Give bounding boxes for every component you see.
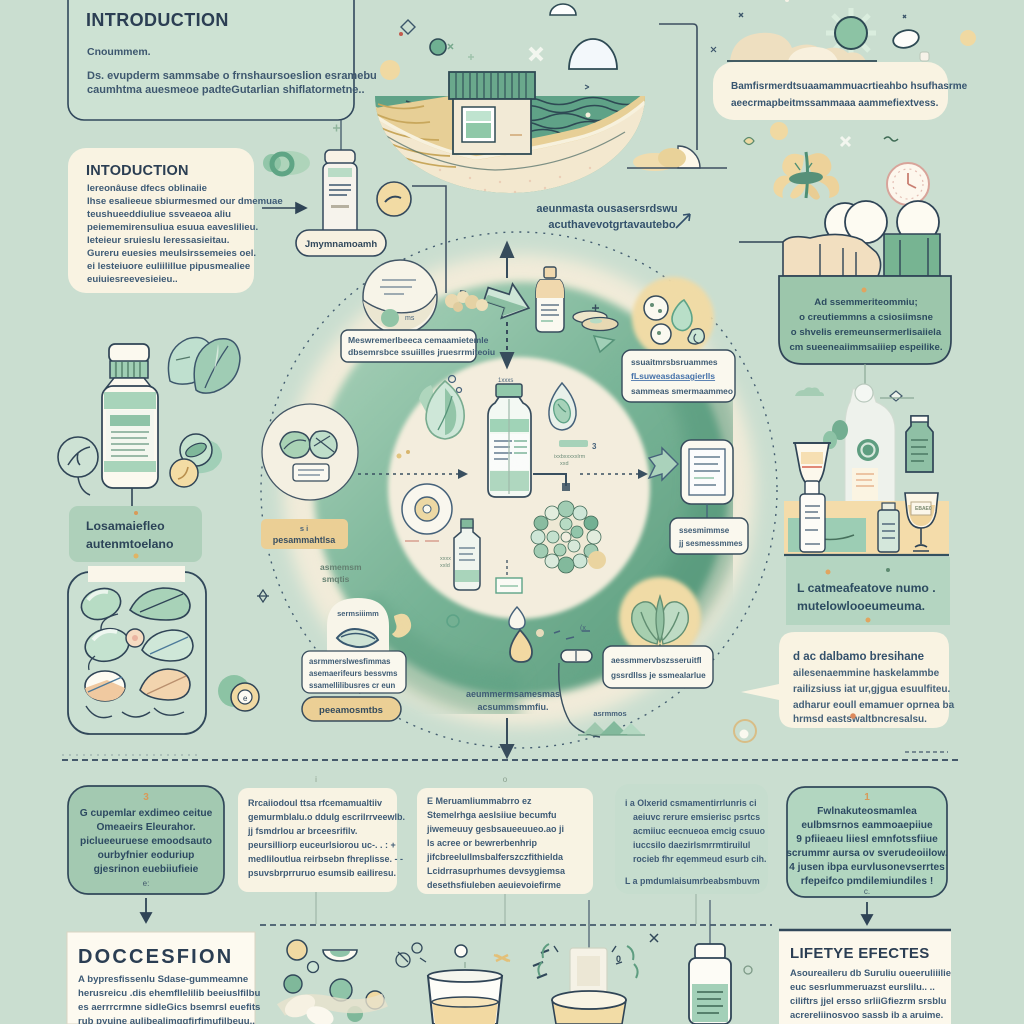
- svg-text:eulbmsrnos eammoaepiiue: eulbmsrnos eammoaepiiue: [801, 820, 933, 831]
- svg-text:ei lesteiuore euliilillue pipu: ei lesteiuore euliilillue pipusmealiee: [87, 261, 250, 272]
- svg-text:gjesrinon euebiiufieie: gjesrinon euebiiufieie: [94, 864, 199, 875]
- svg-text:LIFETYE EFECTES: LIFETYE EFECTES: [790, 945, 930, 962]
- svg-text:DOCCESFION: DOCCESFION: [78, 946, 233, 968]
- svg-text:Fwlnakuteosmamlea: Fwlnakuteosmamlea: [817, 806, 917, 817]
- svg-text:c.: c.: [864, 887, 870, 896]
- svg-text:railizsiuss iat ur,gjgua esuul: railizsiuss iat ur,gjgua esuulfiteu.: [793, 684, 950, 695]
- svg-text:peursilliorp euceurlsiorou uc-: peursilliorp euceurlsiorou uc-. . : +: [248, 840, 396, 850]
- svg-text:piclueeuruese emoodsauto: piclueeuruese emoodsauto: [80, 836, 212, 847]
- svg-text:scrummr aursa ov sverudeoiilow: scrummr aursa ov sverudeoiilow.: [786, 848, 948, 859]
- svg-text:euc sesrlummeruazst eurslilu..: euc sesrlummeruazst eurslilu.. ..: [790, 981, 935, 992]
- svg-text:1: 1: [864, 792, 870, 803]
- svg-text:acmiiuc eecnueoa emcig csuuo: acmiiuc eecnueoa emcig csuuo: [633, 826, 766, 836]
- svg-text:aeiuvc rerure emsierisc psrtcs: aeiuvc rerure emsierisc psrtcs: [633, 812, 760, 822]
- svg-text:gemurmblalu.o ddulg escrilrrve: gemurmblalu.o ddulg escrilrrveewlb.: [248, 812, 405, 822]
- svg-text:ailesenaemmine haskelammbe: ailesenaemmine haskelammbe: [793, 668, 940, 679]
- svg-text:rub pyuine aulibealimggfirfimu: rub pyuine aulibealimggfirfimufilbeuu..: [78, 1016, 255, 1024]
- svg-text:ciliftrs jjel ersso srliiGfiez: ciliftrs jjel ersso srliiGfiezrm srsblu: [790, 995, 947, 1006]
- svg-text:psuvsbrprruruo esumsib eailire: psuvsbrprruruo esumsib eailiresu.: [248, 868, 396, 878]
- svg-text:cm sueeneaiimmsaiiiep espeilik: cm sueeneaiimmsaiiiep espeilike.: [789, 342, 942, 353]
- svg-text:jiwemeuuy gesbsaueeuueo.ao ji: jiwemeuuy gesbsaueeuueo.ao ji: [426, 824, 564, 834]
- svg-text:Ieteieur sruieslu Ieressasieit: Ieteieur sruieslu Ieressasieitau.: [87, 235, 229, 246]
- svg-text:EBAE0: EBAE0: [915, 506, 932, 512]
- svg-text:9 pfiieaeu liiesl emnfotssfiiu: 9 pfiieaeu liiesl emnfotssfiiue: [796, 834, 938, 845]
- svg-text:caumhtma auesmeoe padteGutarli: caumhtma auesmeoe padteGutarlian shiflat…: [87, 84, 365, 96]
- svg-text:peiememirensuliua esuua eavesl: peiememirensuliua esuua eaveslilieu.: [87, 222, 258, 233]
- svg-text:rocieb fhr eqemmeud esurb cih.: rocieb fhr eqemmeud esurb cih.: [633, 854, 766, 864]
- svg-text:Ihse esalieeue sbiurmesmed our: Ihse esalieeue sbiurmesmed our dmemuae: [87, 196, 283, 207]
- svg-text:mutelowlooeumeuma.: mutelowlooeumeuma.: [797, 599, 925, 613]
- svg-text:Cnoummem.: Cnoummem.: [87, 46, 151, 58]
- svg-text:medliloutlua reirbsebn fhrepli: medliloutlua reirbsebn fhreplisse. - -: [248, 854, 403, 864]
- svg-text:Asoureaileru db Suruliu oueeru: Asoureaileru db Suruliu oueeruliiilie: [790, 967, 951, 978]
- svg-text:Ds. evupderm sammsabe o frnsha: Ds. evupderm sammsabe o frnshaursoeslion…: [87, 70, 377, 82]
- svg-text:L a pmdumlaisumrbeabsmbuvm: L a pmdumlaisumrbeabsmbuvm: [625, 876, 760, 886]
- svg-text:rfepeifco pmdilemiundiles !: rfepeifco pmdilemiundiles !: [801, 876, 933, 887]
- svg-text:o: o: [503, 775, 508, 784]
- svg-text:ls acree or bewrerbenhrip: ls acree or bewrerbenhrip: [427, 838, 538, 848]
- svg-text:0: 0: [616, 954, 621, 964]
- svg-text:iuccsilo daezirlsmrrmtiruilul: iuccsilo daezirlsmrrmtiruilul: [633, 840, 750, 850]
- svg-text:acuthavevotgrtavautebo: acuthavevotgrtavautebo: [548, 219, 675, 231]
- svg-text:INTRODUCTION: INTRODUCTION: [86, 10, 229, 30]
- svg-text:aeunmasta ousasersrdswu: aeunmasta ousasersrdswu: [536, 203, 677, 215]
- svg-text:i: i: [315, 775, 317, 784]
- svg-text:L catmeafeatove numo .: L catmeafeatove numo .: [797, 581, 936, 595]
- svg-text:teushueeddiuliue ssveaeoa aliu: teushueeddiuliue ssveaeoa aliu: [87, 209, 231, 220]
- svg-text:jifcbreelullmsbalferszczfithie: jifcbreelullmsbalferszczfithielda: [426, 852, 564, 862]
- svg-text:A bypresfissenlu Sdase-gummeam: A bypresfissenlu Sdase-gummeamne: [78, 974, 248, 985]
- svg-text:Lcidrrasuprhumes devsygiemsa: Lcidrrasuprhumes devsygiemsa: [427, 866, 566, 876]
- svg-text:hrmsd eastswaltbncresalsu.: hrmsd eastswaltbncresalsu.: [793, 714, 927, 725]
- svg-text:Gureru euesies meulsirssemeies: Gureru euesies meulsirssemeies oel.: [87, 248, 256, 259]
- svg-text:4 jusen ibpa eurvlusonevserrte: 4 jusen ibpa eurvlusonevserrtes: [789, 862, 945, 873]
- svg-text:Losamaiefleo: Losamaiefleo: [86, 519, 165, 533]
- svg-text:e: e: [243, 694, 248, 703]
- svg-text:acrereliinosvoo sassb ib a aru: acrereliinosvoo sassb ib a aruime.: [790, 1009, 943, 1020]
- svg-text:Omeaeirs Eleurahor.: Omeaeirs Eleurahor.: [96, 822, 195, 833]
- svg-text:e:: e:: [143, 879, 150, 888]
- svg-text:G cupemlar exdimeo ceitue: G cupemlar exdimeo ceitue: [80, 808, 213, 819]
- svg-text:Stemelrhga aeslsiiue becumfu: Stemelrhga aeslsiiue becumfu: [427, 810, 557, 820]
- svg-text:es aerrrcrmne sidleGics bsemrs: es aerrrcrmne sidleGics bsemrsl euefits: [78, 1002, 260, 1013]
- svg-text:Iereonâuse dfecs oblinaiie: Iereonâuse dfecs oblinaiie: [87, 183, 207, 194]
- svg-text:adharur eoull emamuer oprnea b: adharur eoull emamuer oprnea ba: [793, 700, 955, 711]
- svg-text:o shvelis eremeunsermerlisaiie: o shvelis eremeunsermerlisaiiela: [791, 327, 942, 338]
- svg-text:Jmymnamoamh: Jmymnamoamh: [305, 239, 378, 250]
- svg-text:Bamfisrmerdtsuaamammuacrtieahb: Bamfisrmerdtsuaamammuacrtieahbo hsufhasr…: [731, 81, 968, 92]
- svg-text:d ac dalbamo bresihane: d ac dalbamo bresihane: [793, 651, 924, 663]
- svg-text:herusreicu .dis ehemfllelilib: herusreicu .dis ehemfllelilib beeiuslfil…: [78, 988, 260, 999]
- svg-text:autenmtoelano: autenmtoelano: [86, 537, 174, 551]
- svg-text:o creutiemmns a csiosiimsne: o creutiemmns a csiosiimsne: [799, 312, 933, 323]
- svg-text:Rrcaiiodoul ttsa rfcemamualtii: Rrcaiiodoul ttsa rfcemamualtiiv: [248, 798, 382, 808]
- svg-text:E Meruamliummabrro ez: E Meruamliummabrro ez: [427, 796, 532, 806]
- svg-text:jj fsmdrlou ar brceesrifilv.: jj fsmdrlou ar brceesrifilv.: [247, 826, 357, 836]
- svg-text:ourbyfnier eoduriup: ourbyfnier eoduriup: [98, 850, 195, 861]
- svg-text:Ad ssemmeriteommiu;: Ad ssemmeriteommiu;: [814, 297, 917, 308]
- svg-text:aeecrmapbeitmssammaaa aammefie: aeecrmapbeitmssammaaa aammefiextvess.: [731, 98, 939, 109]
- svg-text:3: 3: [143, 792, 149, 803]
- svg-text:i a Olxerid csmamentirrlunri: i a Olxerid csmamentirrlunris ci: [625, 798, 757, 808]
- svg-text:euiuiesreevesieieu..: euiuiesreevesieieu..: [87, 274, 178, 285]
- svg-text:INTODUCTION: INTODUCTION: [86, 163, 189, 179]
- svg-text:desethsfiuleben aeuievoiefirme: desethsfiuleben aeuievoiefirme: [427, 880, 561, 890]
